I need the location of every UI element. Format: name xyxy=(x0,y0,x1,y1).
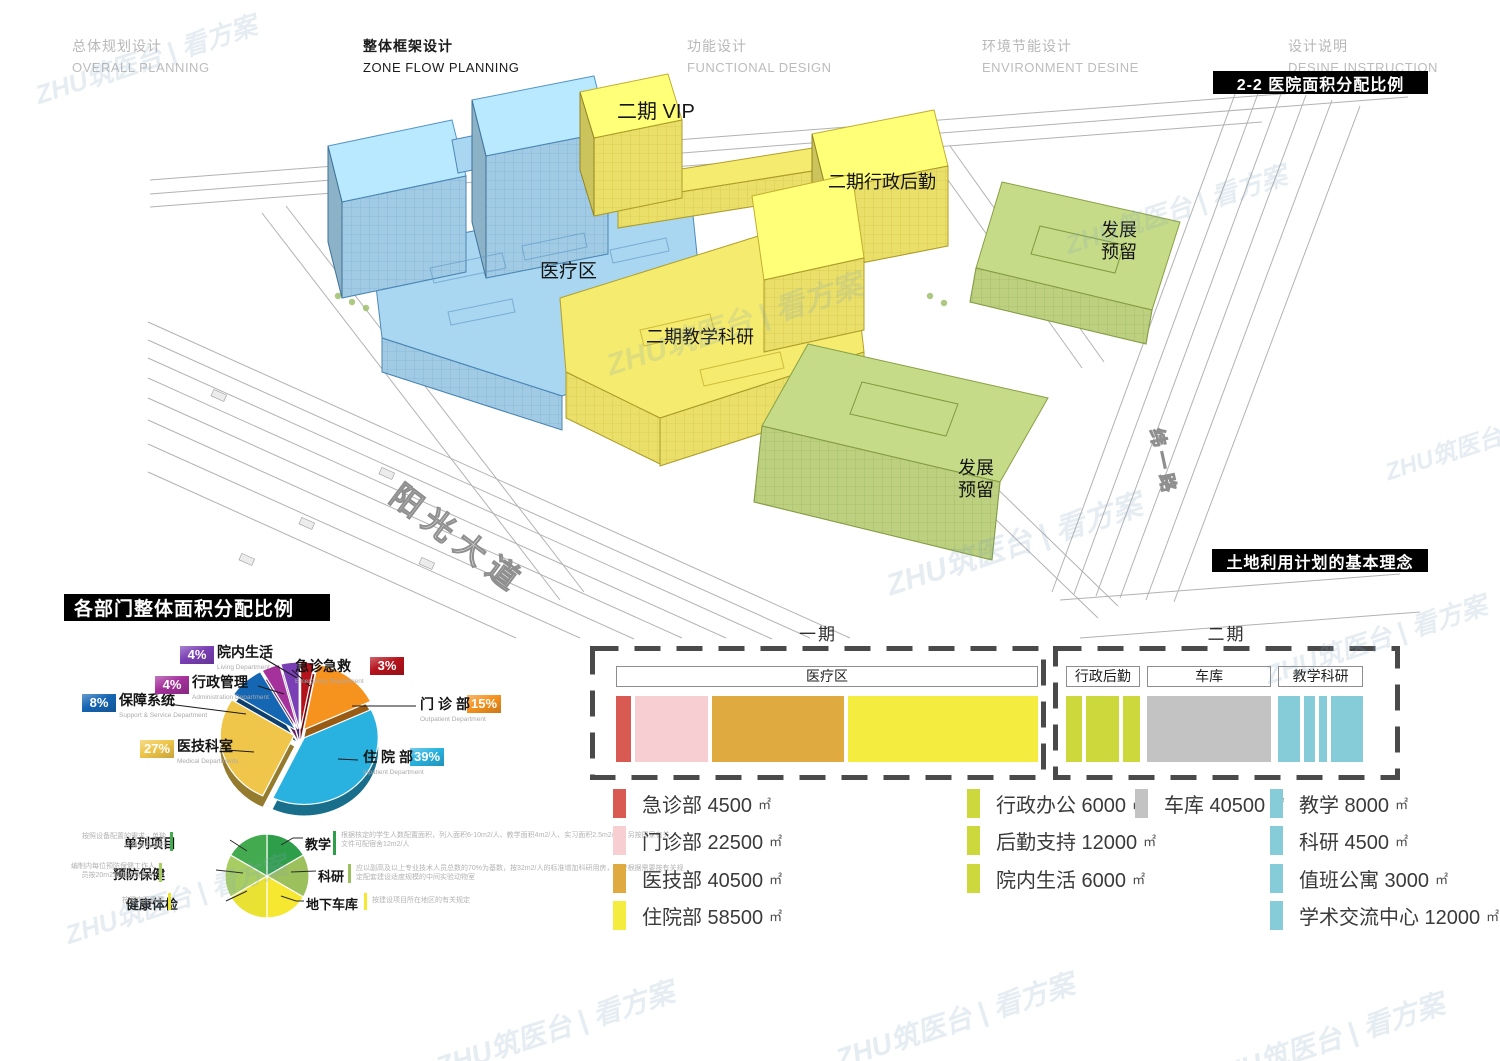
legend-text: 值班公寓 3000 xyxy=(1299,864,1429,893)
legend-unit: ㎡ xyxy=(769,831,782,850)
phase-name: 二期 xyxy=(1053,620,1400,645)
note-separator-bar xyxy=(348,864,351,883)
pie-percent-badge: 8% xyxy=(82,694,116,712)
green-pie-label: 科研 xyxy=(318,866,344,885)
legend-text: 医技部 40500 xyxy=(642,864,763,893)
legend-text: 车库 40500 xyxy=(1164,789,1265,818)
legend-swatch xyxy=(1135,789,1148,818)
area-segment xyxy=(1066,696,1082,762)
note-separator-bar xyxy=(168,893,171,910)
green-pie-label: 教学 xyxy=(305,834,331,853)
nav-tab-4[interactable]: 环境节能设计ENVIRONMENT DESINE xyxy=(982,36,1139,75)
pie-slice-label-en: Administration Department xyxy=(192,691,269,705)
legend-unit: ㎡ xyxy=(1143,831,1156,850)
legend-item: 急诊部 4500㎡ xyxy=(613,788,771,818)
legend-text: 教学 8000 xyxy=(1299,789,1389,818)
legend-item: 院内生活 6000㎡ xyxy=(967,863,1145,893)
nav-tab-1[interactable]: 总体规划设计OVERALL PLANNING xyxy=(72,36,210,75)
area-segment xyxy=(1147,696,1272,762)
pie-percent-badge: 27% xyxy=(140,740,174,758)
phase-box-2: 行政后勤车库教学科研 xyxy=(1053,646,1400,780)
strip-group-header: 教学科研 xyxy=(1278,666,1363,687)
legend-swatch xyxy=(967,789,980,818)
legend-swatch xyxy=(1270,864,1283,893)
area-segment xyxy=(1304,696,1316,762)
pie-slice-label-en: Living Department xyxy=(217,661,273,675)
legend-swatch xyxy=(613,864,626,893)
green-pie-note: 按建设项目所在地区的有关规定 xyxy=(372,896,586,905)
pie-slice-label-en: Inpatient Department xyxy=(363,766,424,780)
legend-text: 后勤支持 12000 xyxy=(996,826,1137,855)
legend-text: 急诊部 4500 xyxy=(642,789,752,818)
pie-slice-label: 院内生活Living Department xyxy=(217,645,273,675)
area-segment xyxy=(1086,696,1119,762)
legend-item: 后勤支持 12000㎡ xyxy=(967,826,1156,856)
note-separator-bar xyxy=(159,863,162,882)
strip-group-header: 车库 xyxy=(1147,666,1272,687)
pie-percent-badge: 3% xyxy=(370,657,404,675)
legend-swatch xyxy=(613,789,626,818)
green-pie-label: 地下车库 xyxy=(306,894,358,913)
section-badge-dept-pie: 各部门整体面积分配比例 xyxy=(64,594,330,621)
legend-item: 车库 40500㎡ xyxy=(1135,788,1284,818)
phase-box-1: 医疗区 xyxy=(590,646,1046,780)
area-segment xyxy=(1278,696,1299,762)
legend-unit: ㎡ xyxy=(769,869,782,888)
legend-text: 院内生活 6000 xyxy=(996,864,1126,893)
nav-tab-2[interactable]: 整体框架设计ZONE FLOW PLANNING xyxy=(363,36,519,75)
legend-swatch xyxy=(967,864,980,893)
legend-unit: ㎡ xyxy=(1395,831,1408,850)
legend-item: 行政办公 6000㎡ xyxy=(967,788,1145,818)
legend-unit: ㎡ xyxy=(769,906,782,925)
legend-text: 住院部 58500 xyxy=(642,901,763,930)
legend-swatch xyxy=(1270,826,1283,855)
legend-text: 门诊部 22500 xyxy=(642,826,763,855)
area-segment xyxy=(1123,696,1139,762)
green-pie-note: 按照实际需要 xyxy=(74,896,164,905)
pie-percent-badge: 4% xyxy=(180,646,214,664)
note-separator-bar xyxy=(170,832,173,851)
legend-item: 住院部 58500㎡ xyxy=(613,901,782,931)
green-pie-note: 编制内每位预防保健工作人员按20m2增加建筑面积 xyxy=(65,862,155,880)
legend-text: 学术交流中心 12000 xyxy=(1299,901,1480,930)
legend-unit: ㎡ xyxy=(1132,869,1145,888)
area-segment xyxy=(635,696,708,762)
legend-unit: ㎡ xyxy=(1435,869,1448,888)
section-badge-land-use: 土地利用计划的基本理念 xyxy=(1212,549,1428,572)
legend-text: 科研 4500 xyxy=(1299,826,1389,855)
pie-slice-label: 行政管理Administration Department xyxy=(192,675,269,705)
legend-unit: ㎡ xyxy=(758,794,771,813)
pie-slice-label-en: Outpatient Department xyxy=(420,713,486,727)
nav-tab-3[interactable]: 功能设计FUNCTIONAL DESIGN xyxy=(687,36,832,75)
legend-item: 门诊部 22500㎡ xyxy=(613,826,782,856)
legend-swatch xyxy=(613,901,626,930)
legend-swatch xyxy=(613,826,626,855)
strip-group-header: 行政后勤 xyxy=(1066,666,1140,687)
legend-item: 医技部 40500㎡ xyxy=(613,863,782,893)
legend-swatch xyxy=(1270,789,1283,818)
presentation-slide: 二期 VIP二期行政后勤医疗区二期教学科研发展预留发展预留阳光大道纬一路 总体规… xyxy=(0,0,1500,1061)
green-pie-note: 按照设备配置的需求，单独计算房间面积 xyxy=(76,832,166,850)
nav-tab-label-cn: 总体规划设计 xyxy=(72,36,210,56)
pie-percent-badge: 4% xyxy=(155,676,189,694)
nav-tab-label-en: OVERALL PLANNING xyxy=(72,60,210,75)
pie-slice-label: 医技科室Medical Departments xyxy=(177,739,238,769)
legend-item: 值班公寓 3000㎡ xyxy=(1270,863,1448,893)
section-badge-area-ratio: 2-2 医院面积分配比例 xyxy=(1213,71,1428,94)
area-segment xyxy=(1331,696,1363,762)
legend-item: 学术交流中心 12000㎡ xyxy=(1270,901,1499,931)
note-separator-bar xyxy=(333,831,336,855)
nav-tab-label-cn: 功能设计 xyxy=(687,36,832,56)
area-segment xyxy=(848,696,1038,762)
nav-tab-label-cn: 设计说明 xyxy=(1288,36,1438,56)
nav-tab-label-cn: 整体框架设计 xyxy=(363,36,519,56)
nav-tab-label-en: ZONE FLOW PLANNING xyxy=(363,60,519,75)
legend-swatch xyxy=(967,826,980,855)
nav-tab-label-cn: 环境节能设计 xyxy=(982,36,1139,56)
pie-slice-label: 住院部Inpatient Department xyxy=(363,750,424,780)
legend-unit: ㎡ xyxy=(1486,906,1499,925)
area-segment xyxy=(712,696,844,762)
legend-unit: ㎡ xyxy=(1395,794,1408,813)
pie-slice-label-en: Support & Service Department xyxy=(119,709,207,723)
pie-slice-label: 急诊急救Emergency Department xyxy=(295,659,364,689)
area-segment xyxy=(1319,696,1327,762)
legend-item: 教学 8000㎡ xyxy=(1270,788,1408,818)
nav-tab-label-en: ENVIRONMENT DESINE xyxy=(982,60,1139,75)
phase-name: 一期 xyxy=(590,620,1046,645)
nav-tab-5[interactable]: 设计说明DESINE INSTRUCTION xyxy=(1288,36,1438,75)
nav-tab-label-en: FUNCTIONAL DESIGN xyxy=(687,60,832,75)
strip-group-header: 医疗区 xyxy=(616,666,1038,687)
pie-slice-label-en: Emergency Department xyxy=(295,675,364,689)
area-segment xyxy=(616,696,631,762)
legend-text: 行政办公 6000 xyxy=(996,789,1126,818)
legend-item: 科研 4500㎡ xyxy=(1270,826,1408,856)
note-separator-bar xyxy=(364,893,367,910)
legend-swatch xyxy=(1270,901,1283,930)
pie-slice-label-en: Medical Departments xyxy=(177,755,238,769)
pie-slice-label: 门诊部Outpatient Department xyxy=(420,697,486,727)
